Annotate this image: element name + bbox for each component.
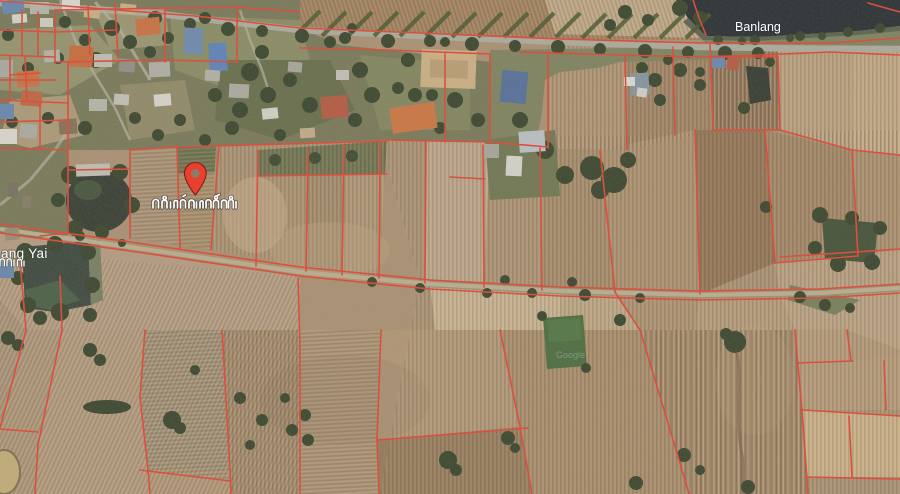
svg-text:Google: Google xyxy=(556,350,585,360)
svg-text:Banlang: Banlang xyxy=(735,20,781,34)
